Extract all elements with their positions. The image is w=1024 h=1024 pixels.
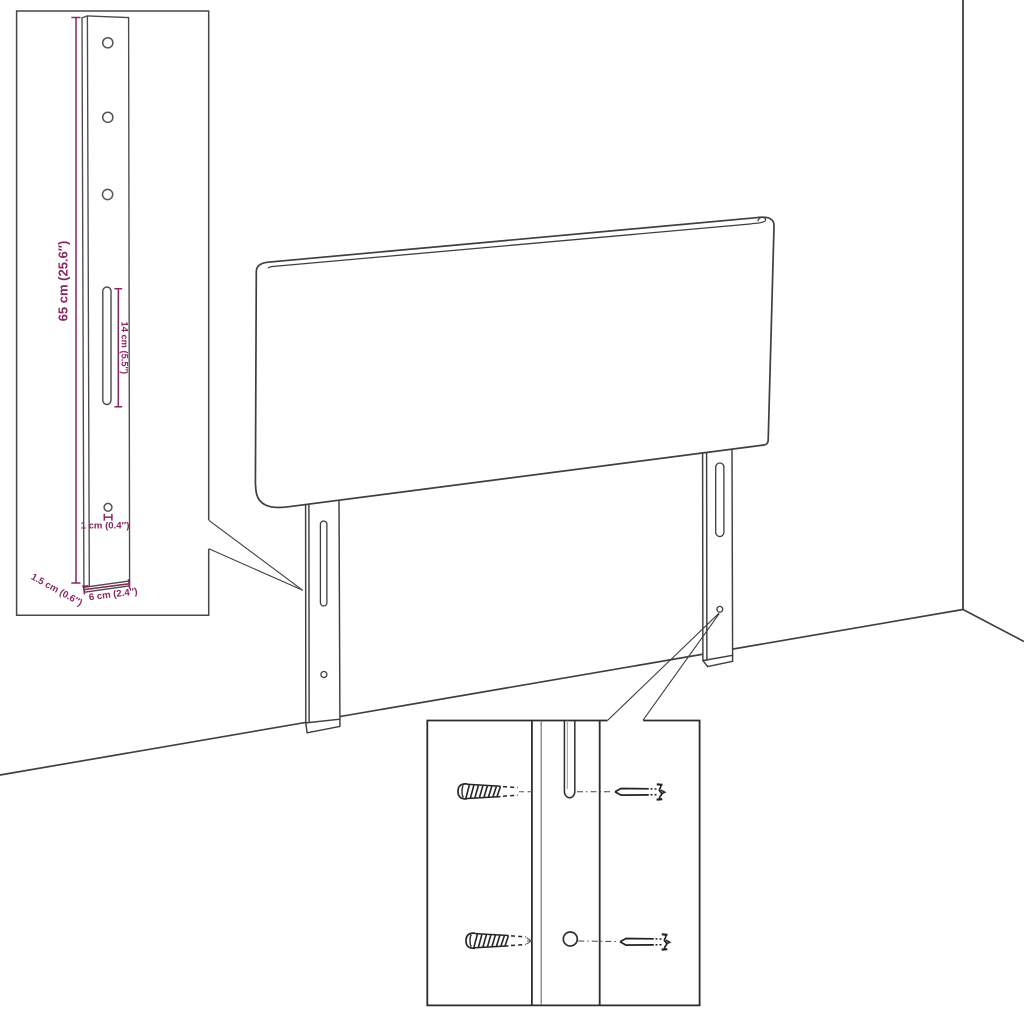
svg-text:1 cm (0.4″): 1 cm (0.4″) [81, 521, 130, 532]
svg-text:14 cm (5.5″): 14 cm (5.5″) [120, 322, 130, 375]
svg-text:65 cm (25.6″): 65 cm (25.6″) [56, 241, 71, 322]
